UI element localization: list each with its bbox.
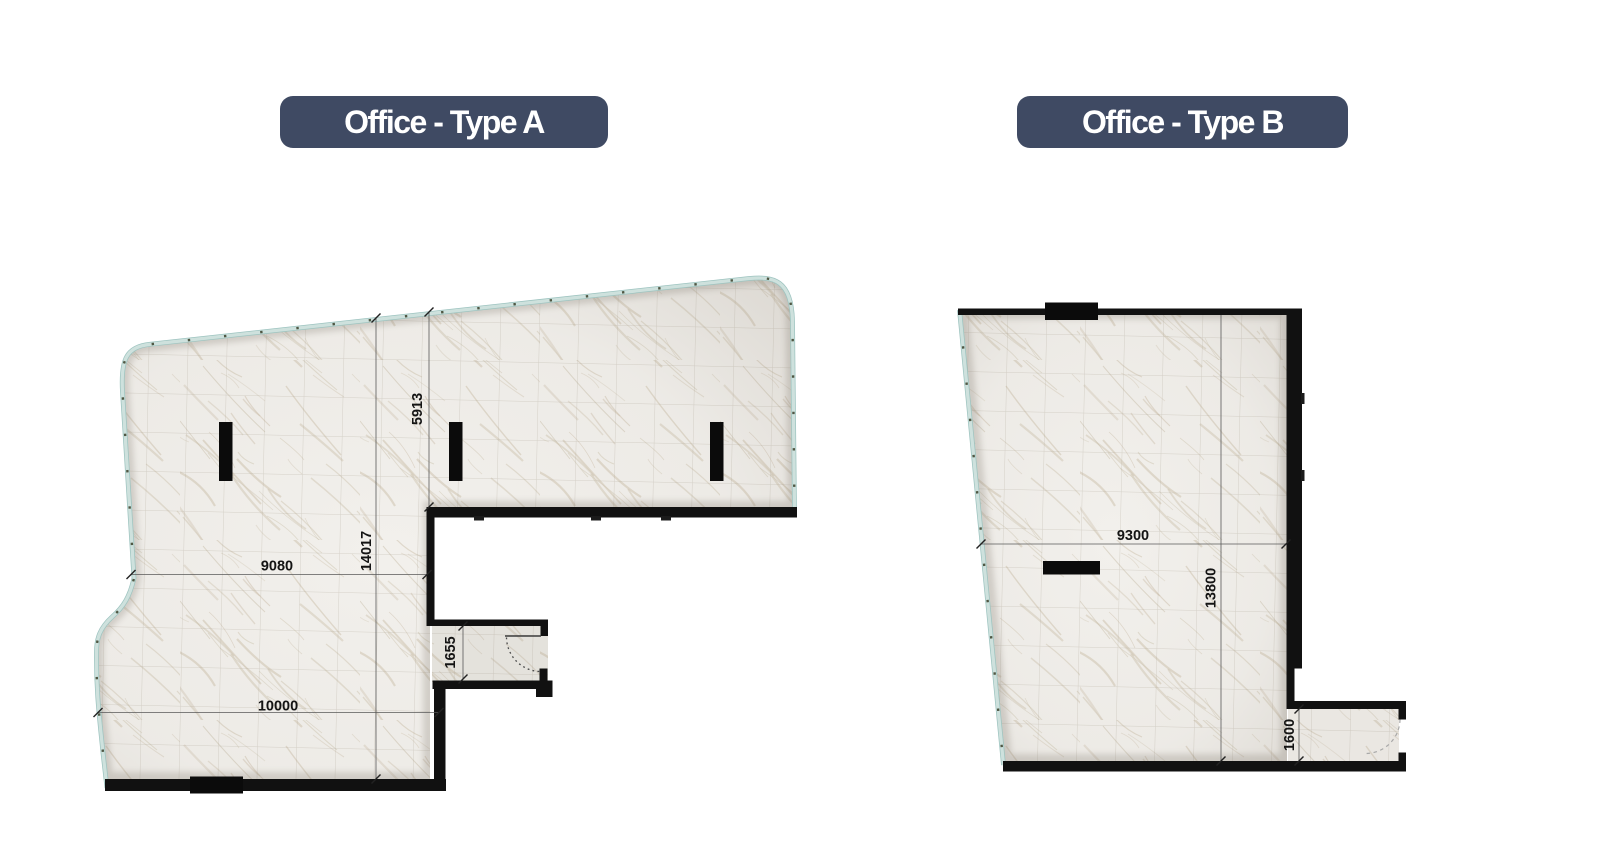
svg-text:14017: 14017 — [359, 531, 375, 571]
svg-text:1600: 1600 — [1282, 719, 1298, 751]
svg-text:1655: 1655 — [443, 636, 459, 668]
svg-text:9300: 9300 — [1117, 528, 1149, 544]
svg-text:5913: 5913 — [410, 393, 426, 425]
svg-text:9080: 9080 — [261, 559, 293, 575]
svg-text:10000: 10000 — [258, 699, 298, 715]
svg-text:13800: 13800 — [1204, 568, 1220, 608]
